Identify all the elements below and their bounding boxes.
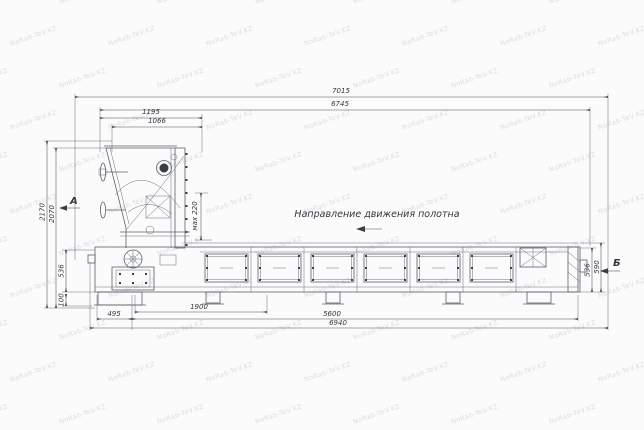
machine-bed xyxy=(88,243,587,305)
technical-drawing: 7015 6745 1195 1066 2170 2070 536 100 ма… xyxy=(0,0,644,430)
drawing-canvas: NoRab-TeV.KZNoRab-TeV.KZNoRab-TeV.KZNoRa… xyxy=(0,0,644,430)
machine-head xyxy=(99,146,190,248)
view-labels: А Б xyxy=(59,196,621,274)
dim-inner-length: 6745 xyxy=(331,100,349,108)
dim-max-adjust: мах 220 xyxy=(191,201,199,231)
belt-direction-label: Направление движения полотна xyxy=(294,209,459,220)
belt-direction: Направление движения полотна xyxy=(294,209,459,232)
dim-head-base-length: 1900 xyxy=(190,303,208,311)
dim-total-length: 7015 xyxy=(332,87,350,95)
dim-height-outer: 2170 xyxy=(39,203,47,221)
dim-head-width: 1195 xyxy=(142,108,160,116)
dim-base-total-length: 6940 xyxy=(329,319,347,327)
dim-bed-height-left: 536 xyxy=(58,264,66,278)
dim-head-inner-width: 1066 xyxy=(148,117,166,125)
view-label-a: А xyxy=(69,196,78,207)
dim-foot-span: 495 xyxy=(107,310,121,318)
dim-bed-length: 5600 xyxy=(323,310,341,318)
dim-height-inner: 2070 xyxy=(48,205,56,223)
dim-bed-height-right: 536 xyxy=(584,263,592,277)
view-label-b: Б xyxy=(613,258,621,269)
dimension-texts: 7015 6745 1195 1066 2170 2070 536 100 ма… xyxy=(39,87,602,327)
belt-direction-arrow-icon xyxy=(356,226,365,232)
dim-foot-height: 100 xyxy=(58,293,66,307)
view-a-arrow-icon xyxy=(59,205,67,211)
dim-right-outer-height: 590 xyxy=(593,260,601,274)
